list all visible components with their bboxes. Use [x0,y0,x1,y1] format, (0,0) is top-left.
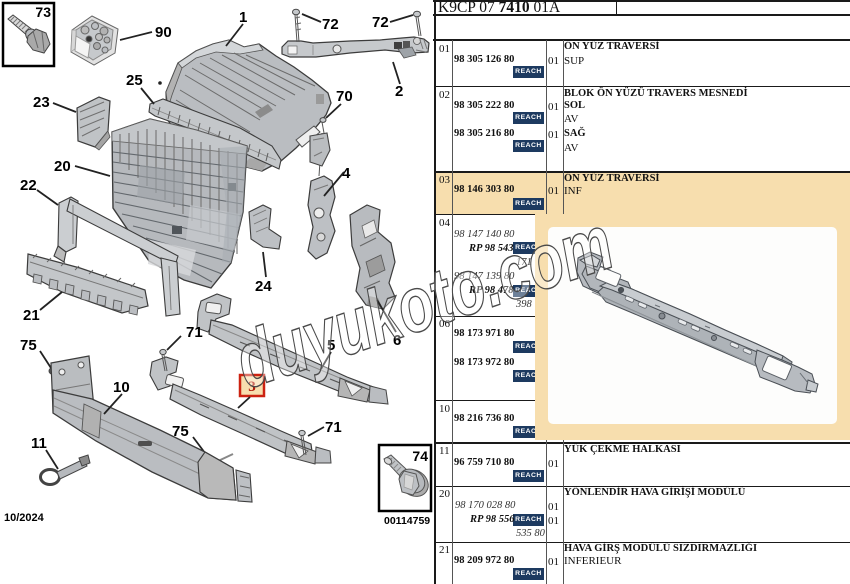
svg-text:5: 5 [327,337,335,354]
svg-text:90: 90 [155,24,172,41]
svg-text:25: 25 [126,72,143,89]
svg-text:72: 72 [372,14,389,31]
svg-text:24: 24 [255,278,272,295]
svg-text:6: 6 [393,332,401,349]
svg-text:3: 3 [248,379,256,395]
svg-text:70: 70 [336,88,353,105]
svg-text:10/2024: 10/2024 [4,512,45,524]
svg-text:22: 22 [20,177,37,194]
svg-text:71: 71 [325,419,342,436]
svg-text:00114759: 00114759 [384,515,430,527]
svg-text:11: 11 [31,435,47,452]
svg-text:23: 23 [33,94,50,111]
svg-text:20: 20 [54,158,71,175]
svg-text:71: 71 [186,324,203,341]
svg-text:21: 21 [23,307,40,324]
svg-text:75: 75 [20,337,37,354]
svg-text:74: 74 [412,448,428,464]
svg-text:1: 1 [239,9,247,26]
svg-text:72: 72 [322,16,339,33]
svg-text:2: 2 [395,83,403,100]
svg-text:73: 73 [35,4,51,20]
